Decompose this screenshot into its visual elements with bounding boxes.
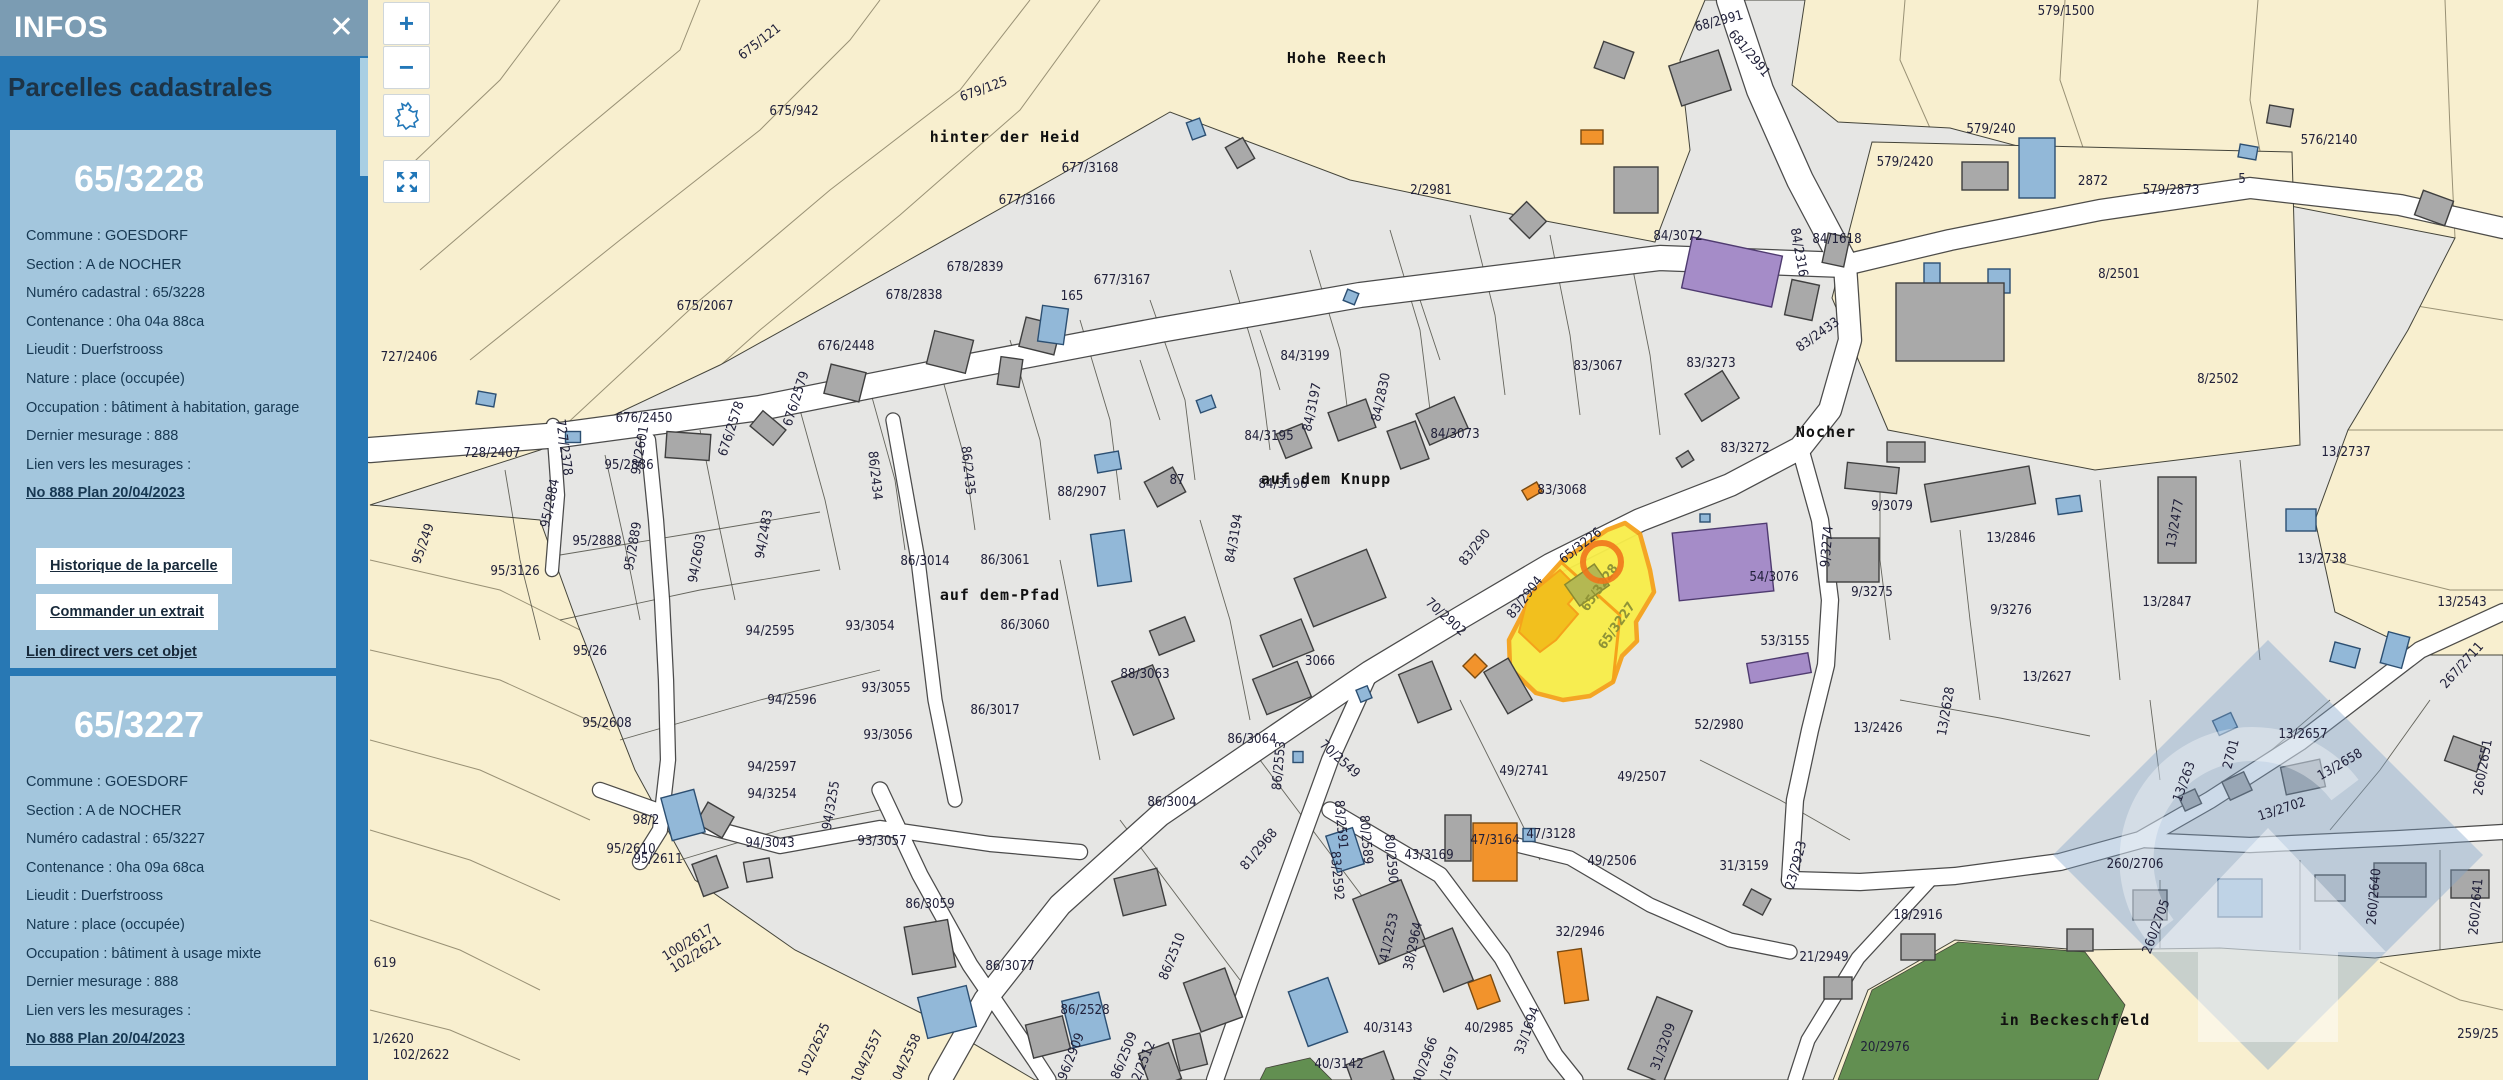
parcel-label: 86/3014 [900,554,949,569]
parcel-label: 676/2450 [616,411,673,426]
parcel-attribute-row: Nature : place (occupée) [26,365,330,394]
parcel-label: 579/1500 [2038,4,2095,19]
parcel-label: 83/3067 [1573,359,1622,374]
parcel-label: 13/2426 [1853,721,1902,736]
parcel-number: 65/3228 [74,158,330,200]
parcel-label: 9/3275 [1851,585,1893,600]
place-name-label: auf dem Knupp [1261,470,1391,488]
parcel-label: 94/2595 [745,624,794,639]
parcel-label: 88/2907 [1057,485,1106,500]
parcel-label: 18/2916 [1893,908,1942,923]
parcel-label: 95/26 [573,644,607,659]
building [1473,823,1517,881]
parcel-label: 84/3072 [1653,229,1702,244]
parcel-attribute-row: Section : A de NOCHER [26,797,330,826]
place-name-label: hinter der Heid [930,128,1080,146]
building [1962,162,2008,190]
parcel-label: 8/2502 [2197,372,2239,387]
parcel-label: 86/3004 [1147,795,1196,810]
parcel-attribute-row: Lien vers les mesurages : [26,451,330,480]
parcel-attribute-row: Nature : place (occupée) [26,911,330,940]
building [1845,462,1899,493]
parcel-attribute-row: Contenance : 0ha 04a 88ca [26,308,330,337]
parcel-attribute-row: Commune : GOESDORF [26,768,330,797]
parcel-label: 676/2448 [818,339,875,354]
parcel-attribute-row: Numéro cadastral : 65/3228 [26,279,330,308]
parcel-label: 88/3063 [1120,667,1169,682]
parcel-label: 102/2622 [393,1048,450,1063]
parcel-attribute-row: Occupation : bâtiment à usage mixte [26,940,330,969]
parcel-label: 677/3166 [999,193,1056,208]
parcel-number: 65/3227 [74,704,330,746]
parcel-label: 86/3060 [1000,618,1049,633]
parcel-label: 619 [374,956,397,971]
building [1581,130,1603,144]
luxembourg-outline-icon [394,101,420,131]
parcel-label: 675/2067 [677,299,734,314]
parcel-label: 95/3126 [490,564,539,579]
parcel-label: 47/3128 [1526,827,1575,842]
building [1824,977,1852,999]
parcel-label: 86/3061 [980,553,1029,568]
parcel-label: 40/3142 [1314,1057,1363,1072]
parcel-label: 579/240 [1966,122,2015,137]
building [476,391,496,407]
parcel-label: 13/2738 [2297,552,2346,567]
parcel-label: 54/3076 [1749,570,1798,585]
parcel-label: 86/2528 [1060,1003,1109,1018]
parcel-label: 98/2 [633,813,660,828]
parcel-label: 43/3169 [1404,848,1453,863]
parcel-label: 49/2506 [1587,854,1636,869]
measurement-plan-link[interactable]: No 888 Plan 20/04/2023 [26,479,185,508]
parcel-label: 83/3273 [1686,356,1735,371]
building [2019,138,2055,198]
parcel-attribute-row: Numéro cadastral : 65/3227 [26,825,330,854]
place-name-label: Nocher [1796,423,1856,441]
parcel-label: 94/3043 [745,836,794,851]
parcel-label: 93/3056 [863,728,912,743]
parcel-label: 8/2501 [2098,267,2140,282]
parcel-label: 84/3195 [1244,429,1293,444]
parcel-label: 32/2946 [1555,925,1604,940]
parcel-label: 20/2976 [1860,1040,1909,1055]
parcel-label: 84/3199 [1280,349,1329,364]
parcel-label: 83/3068 [1537,483,1586,498]
building [665,431,711,460]
parcel-label: 9/3079 [1871,499,1913,514]
parcel-card: 65/3227Commune : GOESDORFSection : A de … [10,676,336,1066]
building [1901,934,1935,960]
building [1700,514,1710,522]
parcel-label: 260/2706 [2107,857,2164,872]
parcel-label: 9/3276 [1990,603,2032,618]
parcel-label: 95/2608 [582,716,631,731]
info-panel: INFOS ✕ Parcelles cadastrales 65/3228Com… [0,0,368,1080]
parcel-label: 93/3054 [845,619,894,634]
building [2238,144,2258,160]
parcel-cards: 65/3228Commune : GOESDORFSection : A de … [0,0,368,1080]
app-stage: 675/121679/125675/942675/2067727/2406728… [0,0,2503,1080]
parcel-label: 728/2407 [464,446,521,461]
parcel-label: 84/3073 [1430,427,1479,442]
building [2056,495,2082,514]
parcel-label: 579/2420 [1877,155,1934,170]
parcel-attribute-row: Lieudit : Duerfstrooss [26,336,330,365]
place-name-label: auf dem-Pfad [940,586,1060,604]
parcel-history-button[interactable]: Historique de la parcelle [36,548,232,584]
parcel-label: 727/2406 [381,350,438,365]
parcel-label: 579/2873 [2143,183,2200,198]
full-extent-button[interactable] [383,94,430,137]
parcel-label: 93/3055 [861,681,910,696]
parcel-label: 1/2620 [372,1032,414,1047]
fullscreen-icon [395,170,419,194]
parcel-label: 40/2985 [1464,1021,1513,1036]
parcel-label: 675/942 [769,104,818,119]
parcel-label: 13/2737 [2321,445,2370,460]
parcel-label: 94/2597 [747,760,796,775]
building [2067,929,2093,951]
parcel-label: 165 [1061,289,1084,304]
parcel-label: 677/3168 [1062,161,1119,176]
parcel-label: 2872 [2078,174,2108,189]
parcel-label: 31/3159 [1719,859,1768,874]
parcel-label: 95/2888 [572,534,621,549]
parcel-attribute-row: Section : A de NOCHER [26,251,330,280]
fullscreen-button[interactable] [383,160,430,203]
building [1672,523,1774,601]
parcel-attribute-row: Dernier mesurage : 888 [26,968,330,997]
parcel-label: 86/3017 [970,703,1019,718]
parcel-label: 94/2596 [767,693,816,708]
building [1896,283,2004,361]
parcel-attribute-row: Lieudit : Duerfstrooss [26,882,330,911]
parcel-attribute-row: Lien vers les mesurages : [26,997,330,1026]
parcel-label: 83/3272 [1720,441,1769,456]
parcel-label: 13/2627 [2022,670,2071,685]
parcel-label: 49/2507 [1617,770,1666,785]
parcel-label: 87 [1169,473,1184,488]
building [997,357,1023,388]
order-extract-button[interactable]: Commander un extrait [36,594,218,630]
parcel-label: 86/3059 [905,897,954,912]
measurement-plan-link[interactable]: No 888 Plan 20/04/2023 [26,1025,185,1054]
parcel-label: 49/2741 [1499,764,1548,779]
parcel-label: 86/3064 [1227,732,1276,747]
building [1887,442,1925,462]
parcel-attribute-row: Dernier mesurage : 888 [26,422,330,451]
parcel-attribute-row: Occupation : bâtiment à habitation, gara… [26,394,330,423]
parcel-label: 13/2543 [2437,595,2486,610]
parcel-attribute-row: Contenance : 0ha 09a 68ca [26,854,330,883]
parcel-label: 94/3254 [747,787,796,802]
card-actions: Historique de la parcelleCommander un ex… [26,548,330,630]
parcel-label: 678/2839 [947,260,1004,275]
place-name-label: Hohe Reech [1287,49,1387,67]
building [2286,509,2316,531]
parcel-label: 5 [2238,172,2246,187]
parcel-label: 576/2140 [2301,133,2358,148]
building [904,920,956,975]
parcel-label: 2/2981 [1410,183,1452,198]
parcel-label: 3066 [1305,654,1335,669]
place-name-label: in Beckeschfeld [2000,1011,2150,1029]
parcel-label: 52/2980 [1694,718,1743,733]
map-canvas[interactable]: 675/121679/125675/942675/2067727/2406728… [0,0,2503,1080]
parcel-label: 677/3167 [1094,273,1151,288]
parcel-label: 678/2838 [886,288,943,303]
parcel-label: 93/3057 [857,834,906,849]
parcel-label: 53/3155 [1760,634,1809,649]
parcel-label: 13/2847 [2142,595,2191,610]
panel-scrollbar[interactable] [360,58,368,176]
parcel-label: 259/25 [2457,1027,2499,1042]
building [2267,105,2294,127]
zoom-in-button[interactable]: + [383,2,430,45]
parcel-attribute-row: Commune : GOESDORF [26,222,330,251]
parcel-label: 86/3077 [985,959,1034,974]
parcel-label: 21/2949 [1799,950,1848,965]
parcel-label: 13/2657 [2278,727,2327,742]
parcel-label: 47/3164 [1470,833,1519,848]
building [1614,167,1658,213]
parcel-label: 40/3143 [1363,1021,1412,1036]
building [1091,530,1132,586]
building [1293,752,1303,763]
direct-object-link[interactable]: Lien direct vers cet objet [26,644,197,660]
parcel-card: 65/3228Commune : GOESDORFSection : A de … [10,130,336,668]
building [1038,305,1069,344]
parcel-label: 13/2846 [1986,531,2035,546]
parcel-label: 84/1618 [1812,232,1861,247]
building [743,858,772,882]
zoom-out-button[interactable]: − [383,46,430,89]
building [1095,451,1122,473]
parcel-label: 95/2611 [633,852,682,867]
